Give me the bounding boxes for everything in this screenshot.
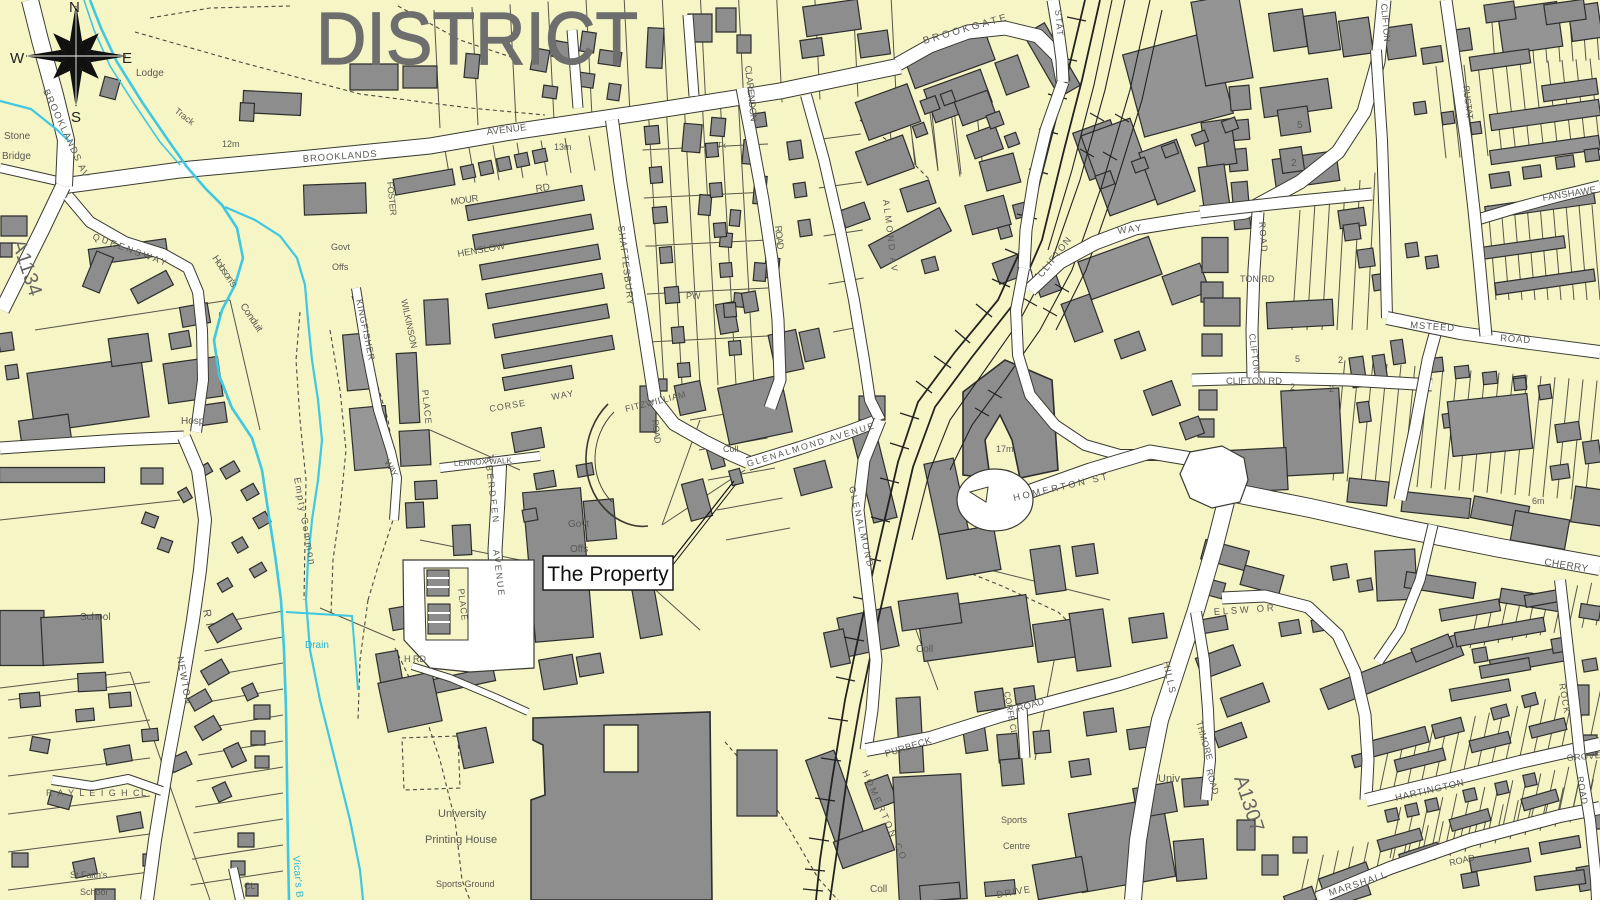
svg-text:13m: 13m xyxy=(554,142,572,152)
svg-text:Tk: Tk xyxy=(717,141,727,150)
svg-text:CLIFTON RD: CLIFTON RD xyxy=(1226,376,1282,387)
svg-text:TON RD: TON RD xyxy=(1240,274,1275,284)
svg-text:Offs: Offs xyxy=(570,544,588,555)
svg-text:Hosp: Hosp xyxy=(181,416,205,427)
svg-text:H RD: H RD xyxy=(404,654,426,664)
svg-text:R A Y L E I G H CL: R A Y L E I G H CL xyxy=(46,788,146,798)
svg-text:ROAD: ROAD xyxy=(1500,333,1531,346)
svg-text:2: 2 xyxy=(1290,382,1295,392)
svg-text:PW: PW xyxy=(686,291,701,301)
svg-text:Govt: Govt xyxy=(568,519,589,530)
svg-text:Sports Ground: Sports Ground xyxy=(436,879,495,889)
svg-text:E: E xyxy=(122,50,132,67)
svg-text:St Faith's: St Faith's xyxy=(70,870,108,880)
svg-text:2: 2 xyxy=(1338,355,1343,365)
svg-text:RD: RD xyxy=(535,182,551,195)
svg-text:Centre: Centre xyxy=(1003,841,1030,851)
svg-text:Drain: Drain xyxy=(305,640,329,651)
svg-text:Sports: Sports xyxy=(1001,815,1028,825)
svg-text:6m: 6m xyxy=(1532,496,1545,506)
svg-text:Coll: Coll xyxy=(723,444,739,454)
svg-text:Stone: Stone xyxy=(4,131,31,142)
svg-text:School: School xyxy=(80,612,111,623)
svg-text:12m: 12m xyxy=(222,139,240,149)
svg-text:Bridge: Bridge xyxy=(2,151,31,162)
svg-text:Offs: Offs xyxy=(332,262,349,272)
svg-text:2: 2 xyxy=(1329,384,1334,394)
svg-text:DISTRICT: DISTRICT xyxy=(316,0,638,80)
svg-text:CL: CL xyxy=(244,881,256,891)
svg-text:Govt: Govt xyxy=(331,242,351,252)
svg-text:N: N xyxy=(69,0,80,16)
svg-text:5: 5 xyxy=(1297,120,1303,131)
svg-text:5: 5 xyxy=(1295,354,1300,364)
svg-text:17m: 17m xyxy=(996,444,1014,454)
svg-text:The Property: The Property xyxy=(547,563,669,586)
svg-text:Lodge: Lodge xyxy=(136,68,164,79)
svg-text:S: S xyxy=(71,109,81,126)
svg-text:Univ: Univ xyxy=(1158,773,1181,785)
svg-text:School: School xyxy=(80,887,108,897)
svg-text:Printing House: Printing House xyxy=(425,834,497,846)
svg-text:Coll: Coll xyxy=(870,884,887,895)
svg-text:Coll: Coll xyxy=(916,644,933,655)
svg-text:W: W xyxy=(10,50,25,67)
svg-text:University: University xyxy=(438,808,487,820)
svg-text:2: 2 xyxy=(1291,158,1297,169)
